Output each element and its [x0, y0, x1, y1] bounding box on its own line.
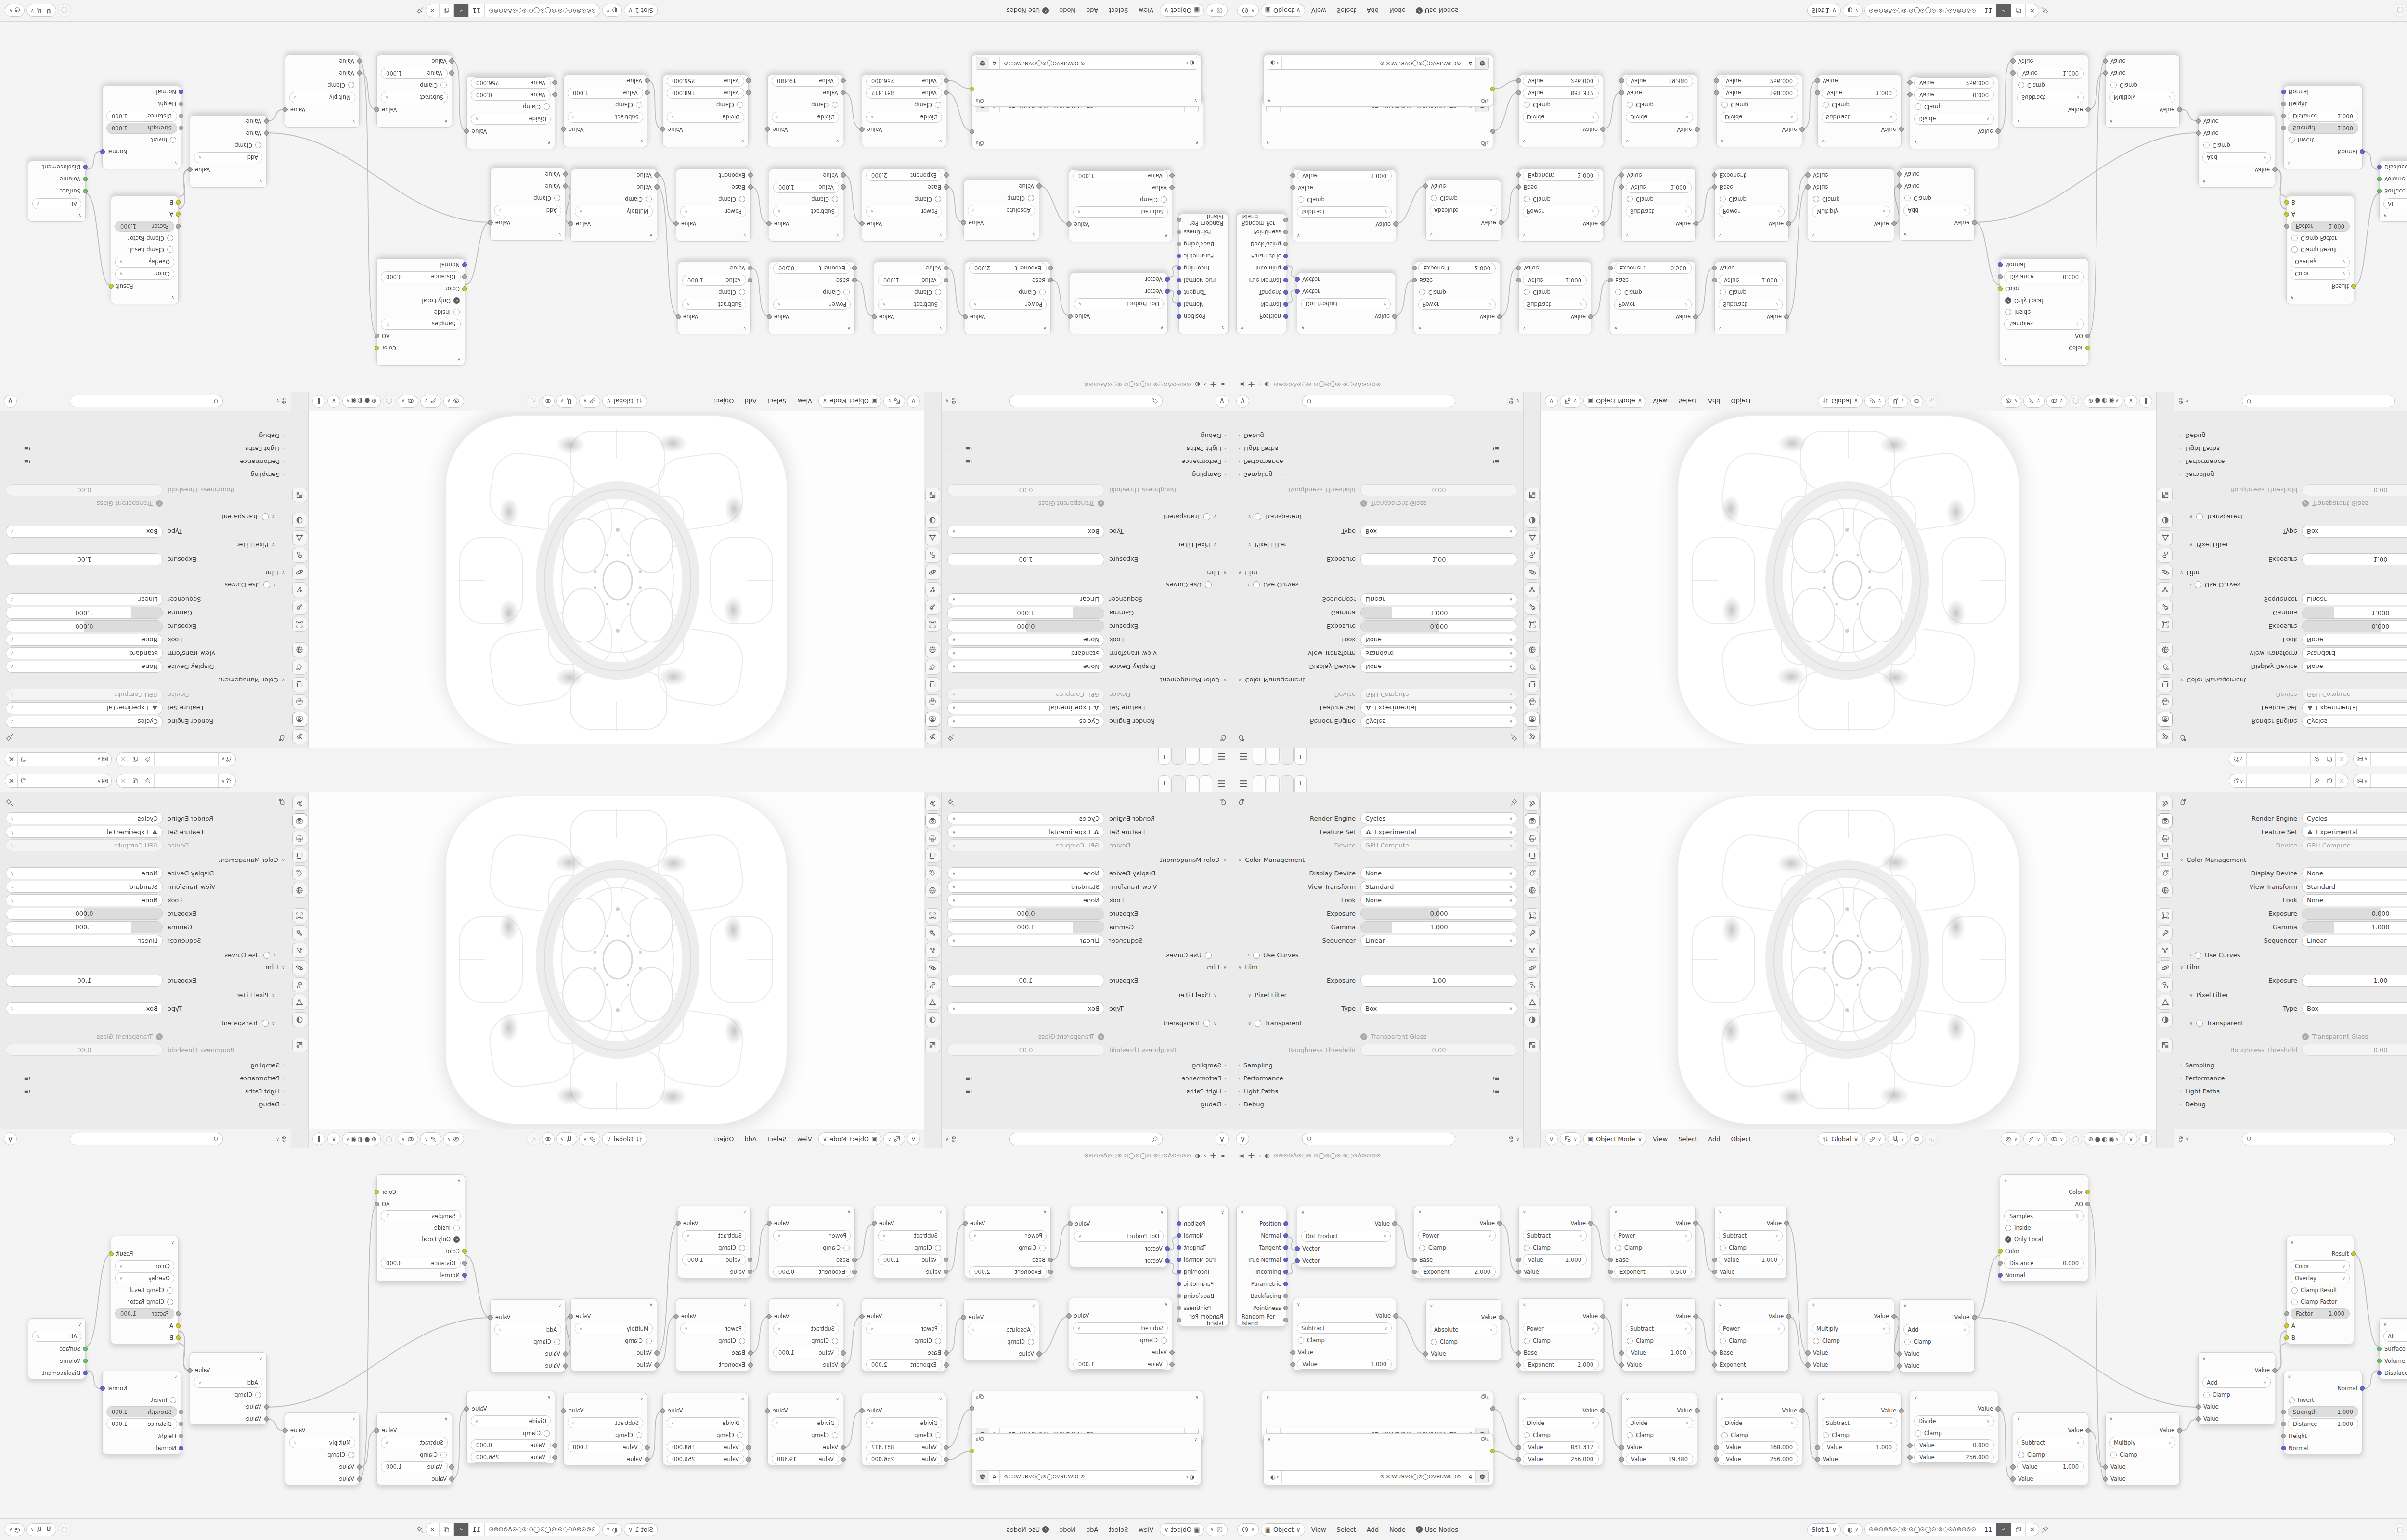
node-header[interactable]: ∨ — [1715, 1299, 1788, 1310]
snap-magnet-button[interactable]: ∨ — [1888, 395, 1909, 408]
shading-material-icon[interactable]: ◐ — [358, 1135, 363, 1142]
panel-header-sampling[interactable]: ›Sampling···· — [2180, 471, 2407, 478]
proportional-edit-button[interactable] — [542, 395, 555, 408]
checkbox[interactable] — [167, 1287, 173, 1294]
menu-select[interactable]: Select — [763, 398, 791, 405]
menu-object[interactable]: Object — [709, 1135, 738, 1142]
pin-icon[interactable] — [6, 734, 13, 742]
node-header[interactable]: ∨ — [1519, 1206, 1591, 1217]
node-operation-dropdown[interactable]: Divide∨ — [1721, 112, 1798, 123]
value-field[interactable]: 0.000 — [947, 908, 1104, 920]
value-field[interactable]: 1.00 — [2302, 553, 2407, 565]
node-collapse-chevron[interactable]: ∨ — [2202, 180, 2206, 184]
checkbox[interactable]: ✓ — [1360, 500, 1367, 507]
value-field[interactable]: Value1.000 — [381, 1461, 448, 1472]
shader-node[interactable]: ∨ValueAdd∨ClampValueValue — [2198, 1352, 2275, 1425]
node-header[interactable]: ∨ — [1715, 230, 1788, 241]
datablock-selector[interactable]: ∨✕ — [116, 752, 236, 766]
shader-node[interactable]: ∨All∨SurfaceVolumeDisplacement — [28, 161, 86, 222]
node-collapse-chevron[interactable]: ∨ — [1221, 1210, 1224, 1215]
node-collapse-chevron[interactable]: ∨ — [2004, 1178, 2007, 1183]
panel-header-performance[interactable]: ›Performance⁝≡···· — [1238, 458, 1517, 465]
properties-tab-physics[interactable] — [2158, 565, 2173, 580]
output-socket[interactable] — [1693, 1221, 1698, 1226]
properties-tab-data[interactable] — [1525, 530, 1540, 545]
node-checkbox-row[interactable]: Clamp — [190, 140, 266, 151]
menu-add[interactable]: Add — [1362, 1526, 1383, 1533]
shading-solid-icon[interactable]: ● — [2095, 398, 2100, 405]
checkbox[interactable] — [1904, 1339, 1911, 1345]
node-header[interactable]: ∨ — [676, 1299, 750, 1310]
node-checkbox-row[interactable]: Clamp — [1426, 192, 1501, 204]
node-collapse-chevron[interactable]: ∨ — [2017, 1416, 2020, 1421]
node-collapse-chevron[interactable]: ∨ — [1221, 326, 1224, 331]
panel-header-debug[interactable]: ›Debug···· — [2180, 432, 2407, 439]
app-menu-icon[interactable]: ☰ — [1239, 779, 1248, 789]
shader-node[interactable]: ∨ValueDivide∨ClampValue0.000Value256.000 — [466, 77, 555, 149]
node-collapse-chevron[interactable]: ∨ — [1523, 1302, 1526, 1307]
properties-tab-physics[interactable] — [2158, 960, 2173, 975]
shader-node[interactable]: ∨ValueSubtract∨ClampValue1.000Value — [769, 169, 843, 242]
properties-tab-texture[interactable] — [2158, 1038, 2173, 1052]
input-socket[interactable] — [1608, 266, 1613, 271]
material-slot-selector[interactable]: Slot 1∨ — [1807, 4, 1841, 17]
node-checkbox-row[interactable]: Clamp — [1519, 193, 1603, 205]
node-checkbox-row[interactable]: Clamp — [678, 286, 750, 298]
properties-tab-material[interactable] — [2158, 513, 2173, 528]
input-socket[interactable] — [1998, 287, 2003, 292]
panel-header-performance[interactable]: ›Performance⁝≡···· — [2180, 1075, 2407, 1082]
node-operation-dropdown[interactable]: Subtract∨ — [1626, 1323, 1692, 1334]
shader-node[interactable]: ∨ValuePower∨ClampBaseExponent2.000 — [862, 169, 946, 242]
material-datablock[interactable]: ⊙⊚⊙⊚A⊙◌⊛·⊙◯⊙◯⊙·⊛◌⊙A⊚⊙⊚⊙11✕ — [426, 4, 600, 17]
node-checkbox-row[interactable]: Clamp — [2199, 140, 2275, 151]
node-header[interactable]: ∨ — [1293, 1298, 1396, 1309]
node-checkbox-row[interactable]: Clamp — [1900, 1336, 1974, 1347]
input-socket[interactable] — [1516, 1270, 1521, 1274]
subpanel-transparent[interactable]: ∨Transparent — [1248, 1019, 1517, 1027]
checkbox[interactable] — [636, 102, 642, 108]
value-field[interactable]: 0.00 — [947, 1044, 1104, 1056]
shader-node[interactable]: ∨ValueMultiply∨ClampValueValue — [285, 1412, 360, 1485]
workspace-tab[interactable] — [1185, 775, 1198, 792]
value-field[interactable]: Value168.000 — [1721, 1441, 1798, 1452]
node-header[interactable]: ∨4 — [972, 1391, 1203, 1402]
node-operation-dropdown[interactable]: Divide∨ — [772, 112, 839, 123]
node-collapse-chevron[interactable]: ∨ — [1523, 1397, 1526, 1401]
dropdown-field[interactable]: Cycles∨ — [6, 716, 163, 728]
dropdown-field[interactable]: Standard∨ — [947, 647, 1104, 659]
node-checkbox-row[interactable]: ✓Only Local — [377, 295, 465, 307]
panel-header-pixel-filter[interactable]: ∨Pixel Filter — [2189, 541, 2407, 549]
shading-wireframe-icon[interactable]: ⊕ — [372, 398, 377, 405]
menu-add[interactable]: Add — [1704, 398, 1724, 405]
node-operation-dropdown[interactable]: Subtract∨ — [773, 206, 839, 217]
panel-header-sampling[interactable]: ›Sampling···· — [947, 471, 1227, 478]
properties-tab-wrench[interactable] — [2158, 925, 2173, 940]
menu-select[interactable]: Select — [1104, 7, 1132, 14]
properties-tab-layers[interactable] — [925, 677, 940, 692]
checkbox[interactable] — [167, 1299, 173, 1305]
value-field[interactable]: Value256.000 — [1914, 77, 1994, 89]
filter-chevron-icon[interactable]: ∨ — [1216, 395, 1229, 408]
menu-add[interactable]: Add — [1082, 1526, 1102, 1533]
workspace-tab[interactable] — [1253, 748, 1266, 765]
shader-node[interactable]: ∨ColorAOSamples1Inside✓Only LocalColorDi… — [376, 1174, 465, 1282]
snapping-button[interactable]: ∨ — [26, 4, 56, 17]
node-header[interactable]: ∨ — [190, 1353, 266, 1364]
input-socket[interactable] — [2281, 114, 2286, 119]
node-checkbox-row[interactable]: Clamp — [377, 1449, 452, 1461]
panel-header-sampling[interactable]: ›Sampling···· — [6, 471, 285, 478]
panel-header-color-management[interactable]: ∨Color Management···· — [947, 856, 1227, 863]
input-socket[interactable] — [1412, 1258, 1417, 1262]
properties-tab-camera[interactable] — [925, 712, 940, 727]
app-menu-icon[interactable]: ☰ — [1217, 779, 1226, 789]
node-collapse-chevron[interactable]: ∨ — [939, 326, 942, 331]
pin-icon[interactable] — [6, 799, 13, 806]
dropdown-field[interactable]: None∨ — [2302, 634, 2407, 646]
checkbox[interactable] — [739, 289, 745, 295]
workspace-tab[interactable] — [1281, 775, 1294, 792]
checkbox[interactable] — [1298, 1337, 1304, 1344]
node-operation-dropdown[interactable]: Subtract∨ — [1822, 112, 1897, 123]
node-operation-dropdown[interactable]: Add∨ — [1903, 1324, 1970, 1335]
input-socket[interactable] — [944, 1270, 948, 1274]
material-slot-selector[interactable]: Slot 1∨ — [624, 1523, 658, 1536]
properties-tab-texture[interactable] — [292, 1038, 307, 1052]
node-checkbox-row[interactable]: Clamp — [1910, 101, 1998, 113]
node-header[interactable]: ∨4 — [1262, 138, 1493, 149]
properties-tab-object[interactable] — [292, 908, 307, 923]
properties-tab-globe[interactable] — [925, 883, 940, 898]
checkbox[interactable] — [1255, 1020, 1261, 1027]
node-checkbox-row[interactable]: Clamp — [1808, 193, 1894, 205]
node-header[interactable]: ∨ — [1808, 1299, 1894, 1310]
shader-node[interactable]: ∨ValueSubtract∨ClampValue1.000Value — [1621, 169, 1696, 242]
menu-add[interactable]: Add — [740, 398, 761, 405]
value-field[interactable]: Exponent0.500 — [1614, 1266, 1692, 1277]
node-checkbox-row[interactable]: Clamp — [1818, 1429, 1901, 1441]
panel-header-film[interactable]: ∨Film···· — [6, 963, 285, 971]
node-collapse-chevron[interactable]: ∨ — [1914, 1395, 1917, 1399]
input-socket[interactable] — [2281, 1446, 2286, 1450]
node-header[interactable]: ∨ — [1179, 1206, 1228, 1218]
node-collapse-chevron[interactable]: ∨ — [1241, 1210, 1244, 1215]
snapping-button[interactable]: ∨ — [26, 1523, 56, 1536]
shading-chevron-icon[interactable]: ∨ — [346, 1137, 349, 1142]
node-header[interactable]: ∨ — [111, 293, 178, 304]
viewport-canvas[interactable] — [1541, 411, 2156, 748]
dropdown-field[interactable]: None∨ — [2302, 894, 2407, 906]
dropdown-field[interactable]: GPU Compute∨ — [947, 839, 1104, 851]
output-socket[interactable] — [375, 1202, 379, 1206]
value-field[interactable]: Value1.000 — [773, 182, 839, 193]
node-collapse-chevron[interactable]: ∨ — [1626, 233, 1629, 238]
checkbox[interactable] — [1253, 582, 1260, 589]
panel-header-color-management[interactable]: ∨Color Management···· — [6, 856, 285, 863]
checkbox[interactable] — [1627, 1338, 1633, 1344]
checkbox[interactable] — [1039, 1245, 1046, 1251]
value-field[interactable]: Samples1 — [381, 319, 461, 330]
panel-header-performance[interactable]: ›Performance⁝≡···· — [6, 458, 285, 465]
value-field[interactable]: 1.000 — [6, 607, 163, 619]
node-header[interactable]: ∨ — [1519, 136, 1603, 147]
node-collapse-chevron[interactable]: ∨ — [1719, 1302, 1722, 1307]
shader-node[interactable]: ∨ValueMultiply∨ClampValueValue — [1808, 169, 1894, 242]
shader-editor-canvas[interactable]: ▣›◐⊙⊚⊙⊚A⊙◌⊛·⊙◯⊙◯⊙·⊛◌⊙A⊚⊙⊚⊙∨PositionNorma… — [1232, 22, 2407, 392]
node-header[interactable]: ∨ — [862, 1393, 946, 1404]
material-slot-selector[interactable]: Slot 1∨ — [1807, 1523, 1841, 1536]
output-socket[interactable] — [1177, 302, 1181, 307]
checkbox[interactable] — [2291, 235, 2298, 242]
node-checkbox-row[interactable]: Clamp — [564, 1429, 647, 1441]
node-header[interactable]: ∨ — [1622, 1393, 1697, 1404]
value-field[interactable]: Exponent2.000 — [866, 1359, 942, 1370]
properties-search-field[interactable] — [1009, 1133, 1163, 1145]
editor-collapse-chevron[interactable]: ∨ — [907, 1132, 920, 1145]
panel-header-light-paths[interactable]: ›Light Paths⁝≡···· — [2180, 1088, 2407, 1095]
shader-node[interactable]: ∨ValuePower∨ClampBaseExponent — [1714, 1298, 1789, 1371]
properties-tab-material[interactable] — [1525, 1012, 1540, 1027]
input-socket[interactable] — [2281, 1410, 2286, 1414]
node-operation-dropdown[interactable]: Divide∨ — [1626, 112, 1693, 123]
node-header[interactable]: ∨ — [1622, 136, 1697, 147]
node-checkbox-row[interactable]: Clamp Result — [2287, 244, 2354, 256]
fake-user-shield-icon[interactable] — [453, 4, 468, 17]
node-operation-dropdown[interactable]: Subtract∨ — [1297, 206, 1392, 218]
value-field[interactable]: Value1.000 — [2017, 68, 2084, 79]
properties-tab-tool[interactable] — [292, 729, 307, 744]
node-collapse-chevron[interactable]: ∨ — [558, 232, 561, 237]
node-operation-dropdown[interactable]: Power∨ — [680, 1323, 746, 1334]
dropdown-field[interactable]: None∨ — [1360, 634, 1517, 646]
panel-header-film[interactable]: ∨Film···· — [6, 569, 285, 577]
overlay-preview-button[interactable]: ◔∨ — [5, 1523, 25, 1536]
value-field[interactable]: Exponent2.000 — [1523, 170, 1599, 181]
node-collapse-chevron[interactable]: ∨ — [2202, 1356, 2206, 1361]
node-collapse-chevron[interactable]: ∨ — [78, 1322, 81, 1327]
node-operation-dropdown[interactable]: Subtract∨ — [682, 299, 746, 310]
copy-icon[interactable] — [439, 4, 453, 17]
menu-view[interactable]: View — [1307, 7, 1331, 14]
shader-node[interactable]: ∨ValueAdd∨ClampValueValue — [1899, 168, 1975, 241]
shader-node[interactable]: ∨ValueAdd∨ClampValueValue — [2198, 115, 2275, 188]
properties-tab-data[interactable] — [925, 530, 940, 545]
value-field[interactable]: 1.00 — [1360, 975, 1517, 987]
checkbox[interactable]: ✓ — [156, 1033, 163, 1040]
node-checkbox-row[interactable]: Clamp — [1715, 286, 1786, 298]
shader-node[interactable]: ∨ValueAdd∨ClampValueValue — [190, 1352, 267, 1425]
node-header[interactable]: ∨ — [862, 1299, 946, 1310]
dropdown-field[interactable]: Linear∨ — [6, 593, 163, 605]
output-socket[interactable] — [963, 1221, 968, 1226]
pin-icon[interactable] — [416, 1526, 424, 1533]
properties-tab-object[interactable] — [2158, 617, 2173, 632]
properties-search-field[interactable] — [2242, 1133, 2395, 1145]
shader-node[interactable]: ∨ValuePower∨ClampBaseExponent0.500 — [769, 1206, 855, 1278]
datablock-selector[interactable]: ∨✕ — [5, 774, 112, 788]
node-collapse-chevron[interactable]: ∨ — [1822, 139, 1825, 144]
node-checkbox-row[interactable]: Clamp — [1414, 286, 1500, 298]
node-operation-dropdown[interactable]: Subtract∨ — [381, 1437, 448, 1448]
node-collapse-chevron[interactable]: ∨ — [1297, 234, 1300, 239]
node-header[interactable]: ∨ — [1293, 231, 1396, 242]
workspace-tab[interactable] — [1267, 748, 1280, 765]
checkbox[interactable] — [2005, 1225, 2011, 1231]
panel-header-film[interactable]: ∨Film···· — [2180, 963, 2407, 971]
value-field[interactable]: 1.000 — [1360, 607, 1517, 619]
node-collapse-chevron[interactable]: ∨ — [1418, 326, 1422, 331]
input-socket[interactable] — [1295, 277, 1300, 282]
copy-icon[interactable] — [129, 753, 142, 766]
input-socket[interactable] — [2284, 212, 2289, 217]
node-checkbox-row[interactable]: Invert — [2284, 134, 2362, 146]
checkbox[interactable] — [1813, 196, 1819, 203]
node-checkbox-row[interactable]: Clamp Factor — [2287, 1296, 2354, 1308]
shader-editor-canvas[interactable]: ▣›◐⊙⊚⊙⊚A⊙◌⊛·⊙◯⊙◯⊙·⊛◌⊙A⊚⊙⊚⊙∨PositionNorma… — [1232, 1148, 2407, 1518]
shader-node[interactable]: ∨ValueMultiply∨ClampValueValue — [2105, 55, 2180, 128]
material-ball-icon[interactable]: ◐∨ — [1183, 1471, 1197, 1483]
node-header[interactable]: ∨ — [285, 1413, 359, 1424]
node-checkbox-row[interactable]: Clamp — [1069, 194, 1172, 205]
properties-tab-droplet[interactable] — [292, 660, 307, 675]
node-operation-dropdown[interactable]: Dot Product∨ — [1074, 1231, 1164, 1242]
output-socket[interactable] — [1177, 1318, 1181, 1322]
node-checkbox-row[interactable]: Clamp — [769, 286, 854, 298]
node-collapse-chevron[interactable]: ∨ — [1523, 326, 1526, 331]
dropdown-field[interactable]: Linear∨ — [6, 935, 163, 947]
menu-select[interactable]: Select — [1333, 7, 1360, 14]
input-socket[interactable] — [1295, 1258, 1300, 1263]
dropdown-field[interactable]: None∨ — [947, 894, 1104, 906]
workspace-tab[interactable] — [1171, 748, 1184, 765]
node-checkbox-row[interactable]: Clamp Factor — [111, 1296, 178, 1308]
new-workspace-button[interactable]: + — [1158, 748, 1170, 765]
output-socket[interactable] — [1177, 1282, 1181, 1286]
value-field[interactable]: Value1.000 — [1719, 1254, 1783, 1265]
properties-tab-camera[interactable] — [292, 813, 307, 828]
input-socket[interactable] — [1516, 266, 1521, 271]
panel-header-light-paths[interactable]: ›Light Paths⁝≡···· — [947, 445, 1227, 452]
checkbox[interactable]: ✓ — [1416, 1526, 1423, 1533]
datablock-icon-droplet[interactable]: ∨ — [218, 753, 235, 766]
menu-node[interactable]: Node — [1055, 1526, 1080, 1533]
node-checkbox-row[interactable]: Clamp — [491, 1336, 565, 1347]
value-field[interactable]: Value1.000 — [1073, 170, 1168, 181]
output-socket[interactable] — [1283, 1282, 1288, 1286]
visibility-button[interactable]: ∨ — [2001, 395, 2022, 408]
shader-type-selector[interactable]: ▣Object∨ — [1261, 4, 1305, 17]
node-operation-dropdown[interactable]: All∨ — [32, 198, 81, 209]
node-operation-dropdown[interactable]: Power∨ — [1614, 1230, 1692, 1241]
node-operation-dropdown[interactable]: All∨ — [32, 1331, 81, 1342]
input-socket[interactable] — [1516, 278, 1521, 283]
node-header[interactable]: ∨ — [862, 136, 946, 147]
output-socket[interactable] — [1177, 1258, 1181, 1262]
node-operation-dropdown[interactable]: Subtract∨ — [878, 1230, 942, 1241]
shader-node[interactable]: ∨ValueSubtract∨ClampValue1.000Value — [1518, 262, 1591, 334]
node-operation-dropdown[interactable]: Add∨ — [2202, 152, 2271, 163]
node-operation-dropdown[interactable]: Divide∨ — [1914, 1415, 1994, 1426]
node-checkbox-row[interactable]: Clamp — [2013, 79, 2088, 91]
value-field[interactable]: Value256.000 — [1523, 1453, 1599, 1464]
copy-icon[interactable] — [129, 774, 142, 787]
properties-search-field[interactable] — [1302, 395, 1455, 408]
node-checkbox-row[interactable]: Clamp — [1519, 1429, 1603, 1441]
value-field[interactable]: 1.000 — [1360, 921, 1517, 933]
node-operation-dropdown[interactable]: Power∨ — [969, 1230, 1047, 1241]
node-collapse-chevron[interactable]: ∨ — [352, 1416, 355, 1421]
node-operation-dropdown[interactable]: Multiply∨ — [289, 1437, 355, 1448]
shader-node[interactable]: ∨4◐∨⊙ƆCWUЯVO◯⊙◯OVЯUWCƆ⊙4 — [1263, 1433, 1493, 1485]
output-socket[interactable] — [970, 1406, 974, 1411]
workspace-tab[interactable] — [1199, 775, 1212, 792]
node-collapse-chevron[interactable]: ∨ — [1614, 1209, 1618, 1214]
node-header[interactable]: ∨ — [769, 1206, 854, 1217]
checkbox[interactable] — [935, 289, 941, 295]
viewport-pause-button[interactable]: ‖ — [312, 395, 325, 408]
subpanel-use-curves[interactable]: ›Use Curves — [6, 581, 275, 589]
input-socket[interactable] — [2377, 1371, 2382, 1375]
shader-node[interactable]: ∨ResultColor∨Overlay∨Clamp ResultClamp F… — [2286, 196, 2354, 304]
viewport-canvas[interactable] — [309, 792, 924, 1129]
node-collapse-chevron[interactable]: ∨ — [1626, 1302, 1629, 1307]
output-socket[interactable] — [1283, 1318, 1288, 1322]
node-operation-dropdown[interactable]: Divide∨ — [1523, 1417, 1599, 1428]
properties-tab-wrench[interactable] — [292, 600, 307, 615]
shading-rendered-icon[interactable]: ◉ — [2109, 1135, 2114, 1142]
input-socket[interactable] — [2377, 189, 2382, 194]
shader-node[interactable]: ∨ValueDivide∨ClampValueValue19.480 — [767, 75, 843, 147]
checkbox[interactable]: ✓ — [2005, 1236, 2011, 1243]
overlays-button[interactable]: ∨ — [2046, 395, 2068, 408]
output-socket[interactable] — [1490, 1449, 1495, 1453]
dropdown-field[interactable]: Box∨ — [2302, 526, 2407, 538]
dropdown-field[interactable]: None∨ — [6, 867, 163, 879]
properties-tab-constraints[interactable] — [2158, 977, 2173, 992]
node-header[interactable]: ∨ — [1900, 229, 1974, 240]
snap-link-button[interactable]: ∨ — [579, 1132, 600, 1145]
editor-type-button[interactable]: ∨ — [1206, 4, 1228, 17]
value-field[interactable]: Exponent2.000 — [1418, 1266, 1496, 1277]
node-header[interactable]: ∨4 — [972, 95, 1201, 106]
shading-solid-icon[interactable]: ● — [2095, 1135, 2100, 1142]
node-checkbox-row[interactable]: Clamp — [769, 1242, 854, 1254]
node-header[interactable]: ∨ — [1717, 136, 1802, 147]
node-collapse-chevron[interactable]: ∨ — [171, 296, 174, 301]
input-socket[interactable] — [1412, 1270, 1417, 1274]
node-header[interactable]: ∨ — [676, 230, 750, 241]
shader-node[interactable]: ∨ValueSubtract∨ClampValue1.000Value — [563, 1393, 647, 1465]
new-workspace-button[interactable]: + — [1294, 775, 1307, 792]
output-socket[interactable] — [375, 346, 379, 351]
node-operation-dropdown[interactable]: Power∨ — [1614, 299, 1692, 310]
input-socket[interactable] — [179, 1434, 183, 1438]
node-operation-dropdown[interactable]: Subtract∨ — [1523, 299, 1587, 310]
menu-select[interactable]: Select — [1674, 1135, 1702, 1142]
node-checkbox-row[interactable]: Clamp — [769, 1335, 843, 1347]
value-field[interactable]: Value1.000 — [878, 275, 942, 286]
dropdown-field[interactable]: GPU Compute∨ — [1360, 839, 1517, 851]
node-header[interactable]: ∨ — [2287, 1236, 2354, 1247]
node-header[interactable]: ∨ — [1818, 1393, 1901, 1404]
properties-tab-layers[interactable] — [292, 848, 307, 863]
node-collapse-chevron[interactable]: ∨ — [741, 1397, 744, 1401]
node-collapse-chevron[interactable]: ∨ — [1266, 141, 1269, 146]
dropdown-field[interactable]: Cycles∨ — [2302, 812, 2407, 824]
overlay-preview-button[interactable]: ◔∨ — [5, 4, 25, 17]
